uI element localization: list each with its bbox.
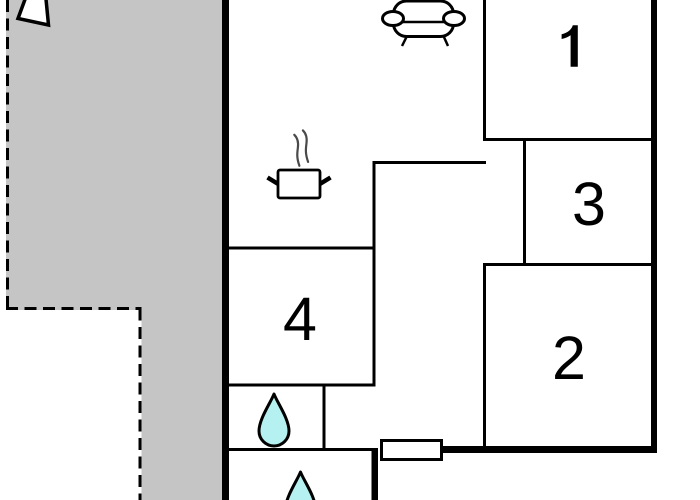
svg-text:2: 2 <box>552 324 586 392</box>
svg-text:3: 3 <box>572 170 606 238</box>
svg-text:4: 4 <box>283 285 317 353</box>
